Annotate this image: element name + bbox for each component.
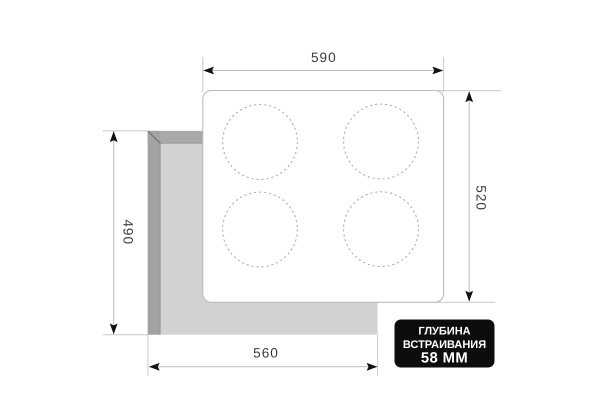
svg-text:490: 490 (121, 219, 136, 245)
svg-text:560: 560 (253, 346, 279, 361)
svg-text:ВСТРАИВАНИЯ: ВСТРАИВАНИЯ (403, 339, 486, 351)
svg-text:ГЛУБИНА: ГЛУБИНА (418, 326, 470, 338)
svg-text:590: 590 (311, 50, 337, 65)
svg-text:520: 520 (473, 185, 488, 211)
svg-text:58 ММ: 58 ММ (421, 351, 468, 367)
